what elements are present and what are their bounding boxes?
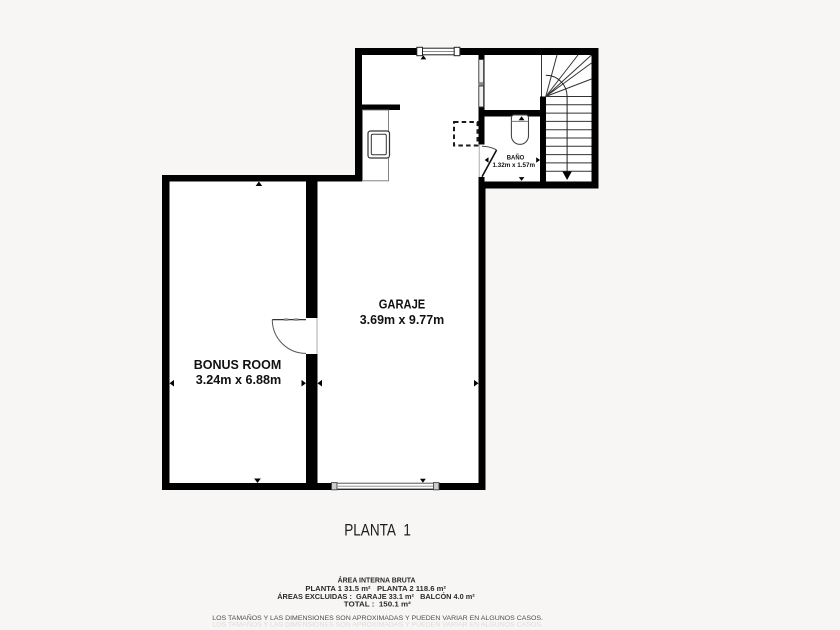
svg-text:3.24m x 6.88m: 3.24m x 6.88m — [196, 372, 282, 387]
svg-text:3.69m x 9.77m: 3.69m x 9.77m — [360, 312, 445, 327]
svg-text:BONUS ROOM: BONUS ROOM — [194, 357, 282, 372]
svg-text:GARAJE: GARAJE — [379, 297, 426, 312]
svg-text:ÁREA INTERNA BRUTA: ÁREA INTERNA BRUTA — [338, 576, 416, 585]
svg-text:PLANTA 1: PLANTA 1 — [344, 521, 411, 540]
svg-text:LOS TAMAÑOS Y LAS DIMENSIONES: LOS TAMAÑOS Y LAS DIMENSIONES SON APROXI… — [212, 619, 543, 628]
svg-text:BAÑO: BAÑO — [507, 153, 525, 162]
svg-text:TOTAL : 150.1 m²: TOTAL : 150.1 m² — [344, 602, 412, 609]
svg-text:PLANTA 1 31.5 m² PLANTA 2 11: PLANTA 1 31.5 m² PLANTA 2 118.6 m² — [305, 586, 446, 593]
svg-text:ÁREAS EXCLUIDAS : GARAJE 33.1: ÁREAS EXCLUIDAS : GARAJE 33.1 m² BALCÓN … — [277, 592, 475, 601]
svg-text:1.32m x 1.57m: 1.32m x 1.57m — [493, 162, 536, 169]
